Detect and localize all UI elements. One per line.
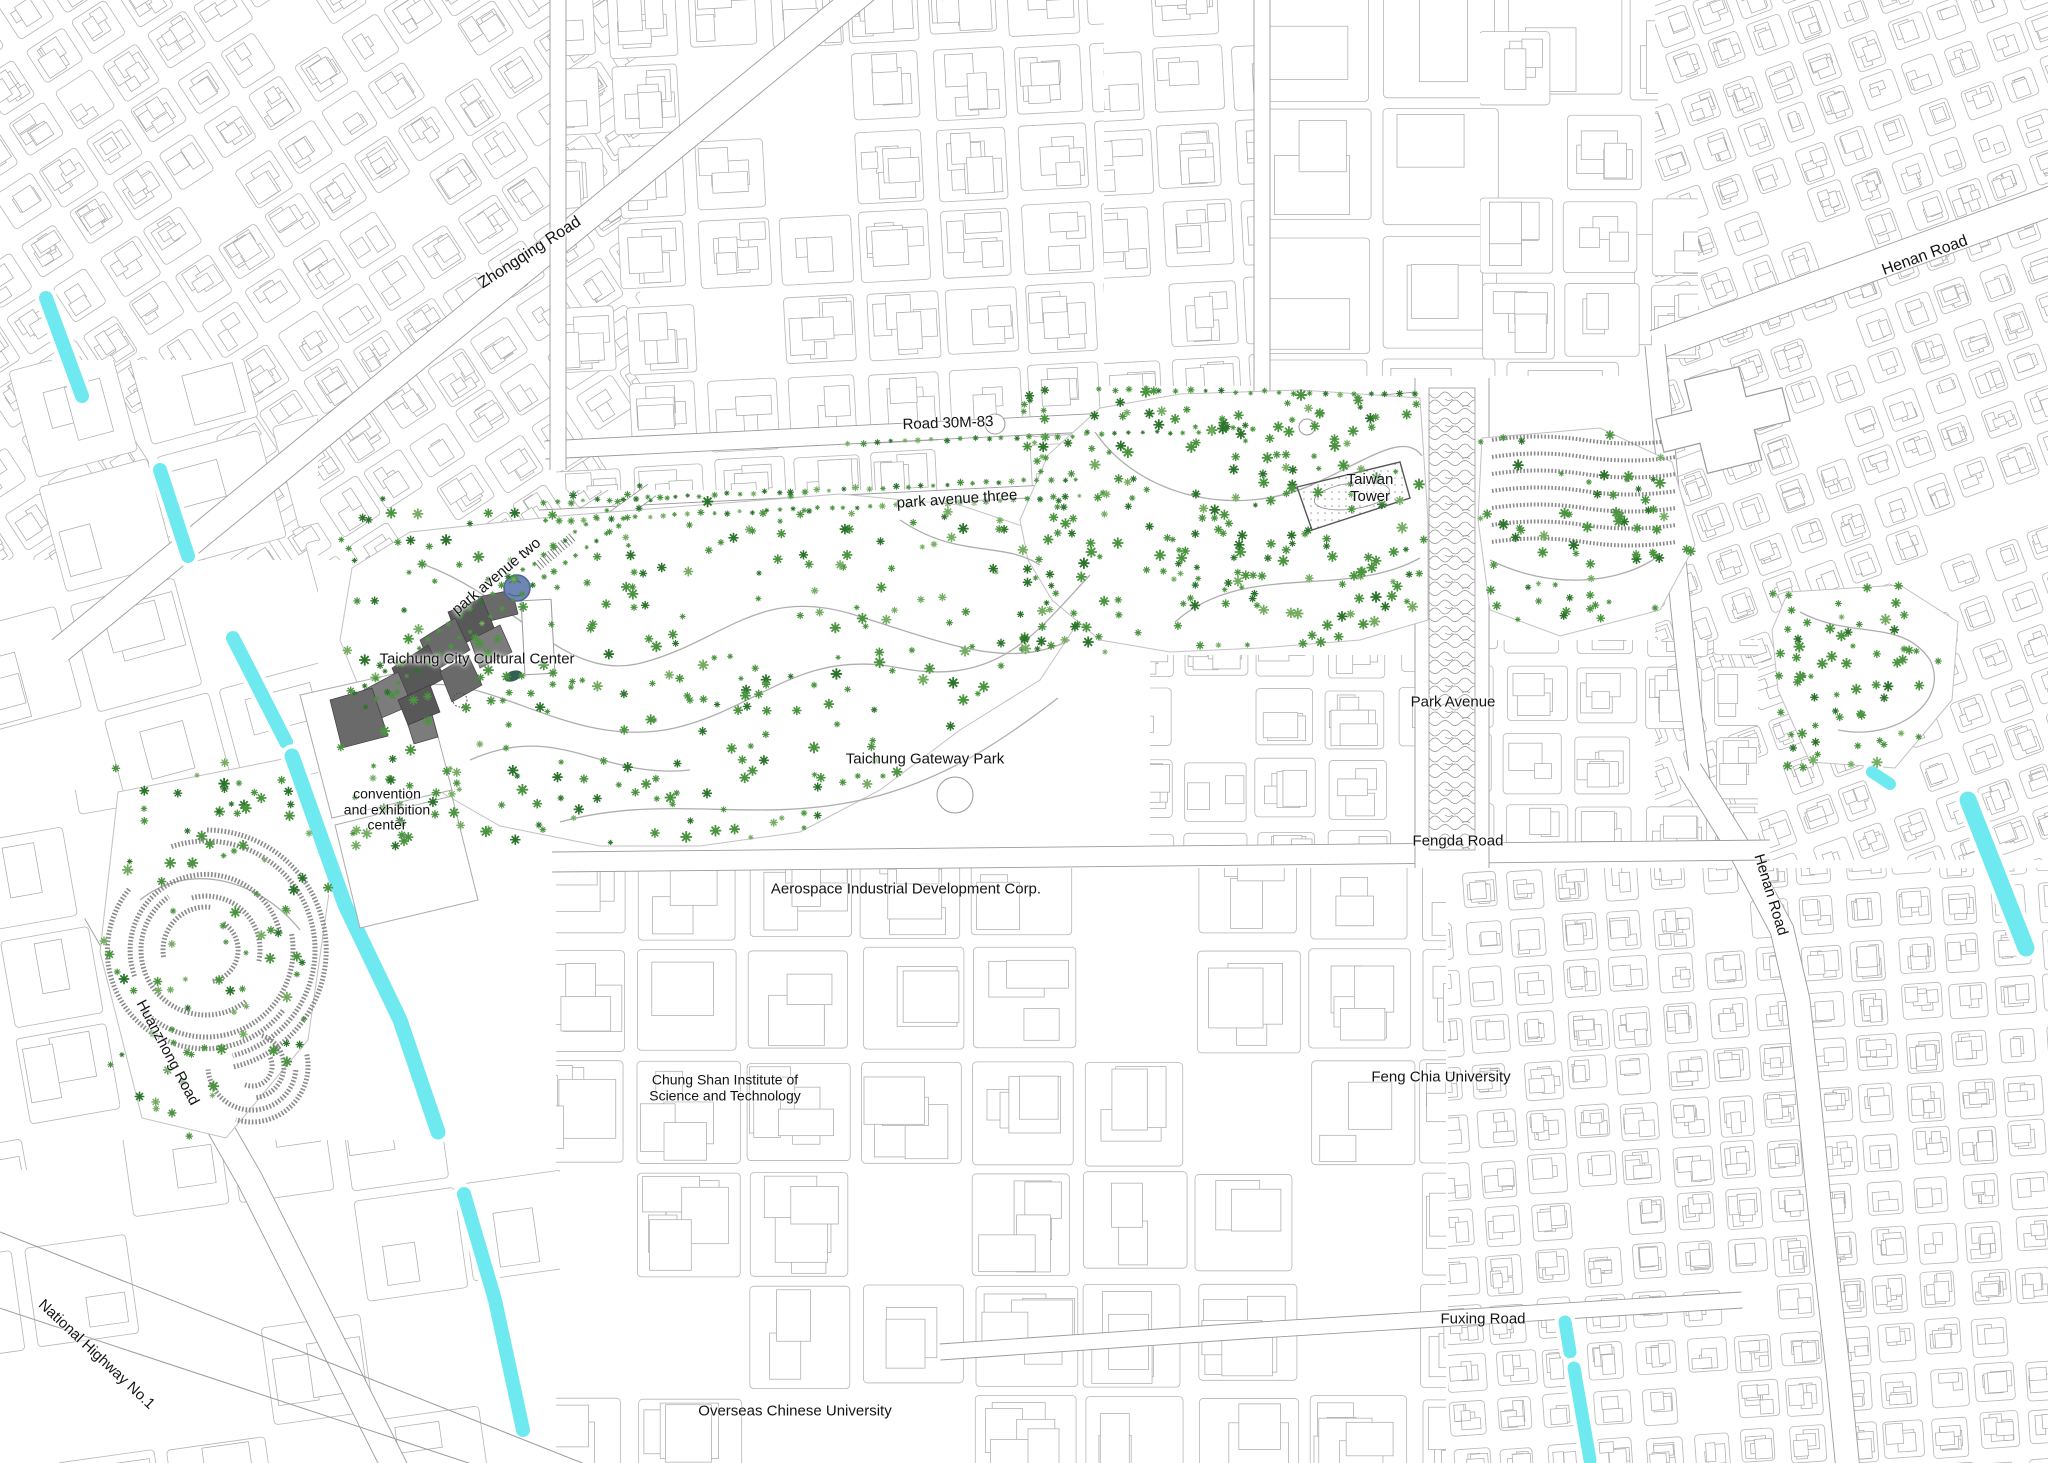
site-plan-map: Zhongqing RoadHenan RoadRoad 30M-83park … xyxy=(0,0,2048,1463)
buildings-layer xyxy=(0,0,2048,1463)
park-avenue-strip xyxy=(1429,388,1475,850)
map-canvas xyxy=(0,0,2048,1463)
